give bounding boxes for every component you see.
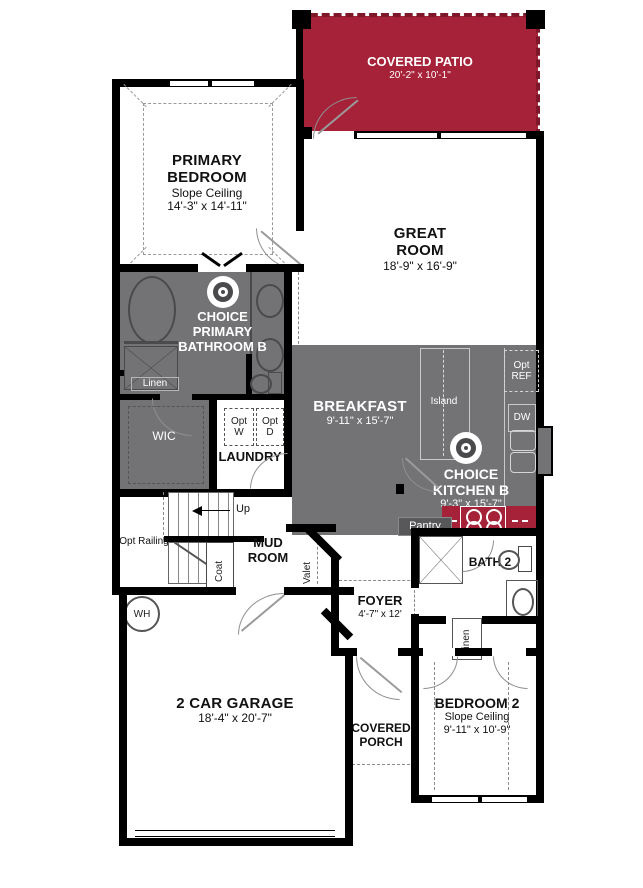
garage-door xyxy=(135,830,335,837)
primary-bathroom-label: CHOICE PRIMARY BATHROOM B xyxy=(175,310,270,355)
wall xyxy=(119,838,353,846)
patio-edge-right xyxy=(536,13,540,137)
wic-label: WIC xyxy=(144,430,184,444)
wall xyxy=(112,370,124,376)
room-name: BEDROOM 2 xyxy=(418,695,536,711)
floor-plan: COVERED PATIO 20'-2" x 10'-1" PRIMARY BE… xyxy=(0,0,643,888)
bedroom2-label: BEDROOM 2 Slope Ceiling 9'-11" x 10'-9" xyxy=(418,695,536,736)
room-dims: 18'-9" x 16'-9" xyxy=(370,260,470,274)
dishwasher: DW xyxy=(508,404,536,432)
valet-label: Valet xyxy=(302,544,313,584)
mud-room-label: MUD ROOM xyxy=(238,536,298,566)
choice-option-icon xyxy=(450,432,482,464)
front-door-arc xyxy=(356,656,400,700)
window xyxy=(441,132,526,139)
patio-column xyxy=(526,10,545,29)
porch-edge-dashed xyxy=(352,764,410,765)
foyer-ceiling-dashed xyxy=(339,580,415,581)
bathtub xyxy=(128,276,176,344)
window xyxy=(212,80,254,87)
opt-fridge: Opt REF xyxy=(504,350,539,392)
wall xyxy=(296,79,304,231)
range-tick xyxy=(512,520,528,522)
room-name: GREAT ROOM xyxy=(370,225,470,260)
room-name: FOYER xyxy=(341,594,419,609)
railing-dashed xyxy=(163,492,164,540)
wall xyxy=(331,556,339,656)
opening-dashed xyxy=(298,272,299,344)
bedroom2-door-arc xyxy=(423,656,458,689)
stairs-up-label: Up xyxy=(231,503,255,516)
window xyxy=(357,132,437,139)
island-label: Island xyxy=(424,396,464,408)
wall xyxy=(411,528,419,588)
toilet-tank xyxy=(518,546,532,572)
opt-dryer: Opt D xyxy=(256,408,284,446)
great-room-label: GREAT ROOM 18'-9" x 16'-9" xyxy=(370,225,470,273)
window xyxy=(432,796,478,803)
room-dims: 20'-2" x 10'-1" xyxy=(355,70,485,82)
primary-bedroom-label: PRIMARY BEDROOM Slope Ceiling 14'-3" x 1… xyxy=(137,152,277,214)
opt-washer: Opt W xyxy=(224,408,254,446)
room-dims: 9'-11" x 10'-9" xyxy=(418,724,536,737)
opt-railing-label: Opt Railing xyxy=(118,536,170,548)
room-ceiling: Slope Ceiling xyxy=(137,187,277,201)
wall xyxy=(209,394,217,489)
tub-deck-line xyxy=(124,341,178,344)
choice-option-icon xyxy=(207,276,239,308)
water-heater: WH xyxy=(124,596,160,632)
cased-opening-dashed xyxy=(414,590,415,616)
covered-porch-label: COVERED PORCH xyxy=(348,722,414,750)
wall xyxy=(112,79,120,595)
room-name: PRIMARY BEDROOM xyxy=(137,152,277,187)
wall xyxy=(119,595,127,845)
foyer-label: FOYER 4'-7" x 12' xyxy=(341,594,419,620)
room-name: COVERED PATIO xyxy=(355,55,485,70)
up-arrow-icon xyxy=(192,506,202,516)
room-dims: 4'-7" x 12' xyxy=(341,609,419,621)
room-ceiling: Slope Ceiling xyxy=(418,711,536,724)
room-name: 2 CAR GARAGE xyxy=(145,695,325,712)
coat-label: Coat xyxy=(214,548,225,582)
sink-bump xyxy=(536,426,553,476)
sink xyxy=(512,588,534,616)
patio-edge-top xyxy=(298,13,543,17)
room-name: BREAKFAST xyxy=(300,398,420,415)
bath-door-opening xyxy=(198,264,246,272)
covered-patio-label: COVERED PATIO 20'-2" x 10'-1" xyxy=(355,55,485,81)
bedroom2-door-opening xyxy=(492,648,526,656)
toilet xyxy=(250,374,272,394)
wall xyxy=(345,656,353,845)
ceiling-corner-line xyxy=(123,84,146,107)
kitchen-sink-basin xyxy=(510,430,536,451)
bedroom2-door-arc xyxy=(493,656,528,689)
ceiling-corner-line xyxy=(268,84,291,107)
room-dims: 14'-3" x 14'-11" xyxy=(137,200,277,214)
patio-column xyxy=(292,10,311,29)
linen-bathroom-label: Linen xyxy=(131,377,179,391)
shower xyxy=(419,536,463,584)
room-dims: 18'-4" x 20'-7" xyxy=(145,712,325,726)
toilet xyxy=(498,550,520,570)
up-arrow-line xyxy=(202,510,230,511)
wall xyxy=(112,587,354,595)
window xyxy=(482,796,527,803)
wall xyxy=(415,528,544,536)
bedroom2-door-opening xyxy=(423,648,455,656)
breakfast-label: BREAKFAST 9'-11" x 15'-7" xyxy=(300,398,420,428)
garage-label: 2 CAR GARAGE 18'-4" x 20'-7" xyxy=(145,695,325,726)
wall xyxy=(331,648,353,656)
window xyxy=(170,80,208,87)
wic-shelf-outline xyxy=(128,406,204,484)
wall xyxy=(396,484,404,494)
room-dims: 9'-11" x 15'-7" xyxy=(300,415,420,428)
